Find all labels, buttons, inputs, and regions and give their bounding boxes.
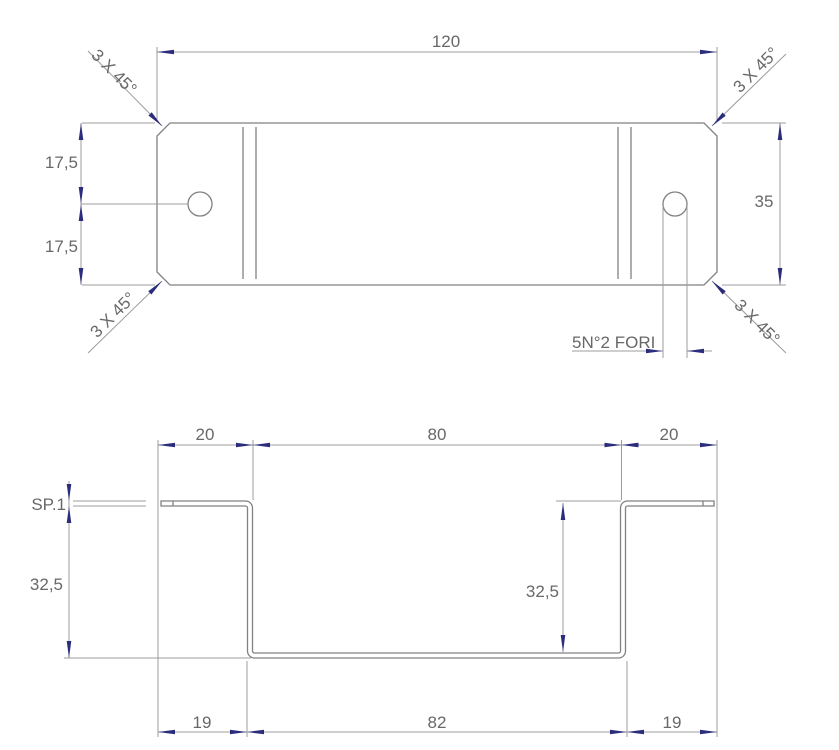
- bend-line-right: [618, 127, 631, 279]
- dim-upper-half-text: 17,5: [45, 153, 78, 172]
- height-outer-text: 32,5: [30, 575, 63, 594]
- cad-drawing: 120 35 17,5 17,5 5N°2 FORI: [0, 0, 839, 750]
- plate-outline: [157, 123, 717, 285]
- chamfer-text-bottom-right: 3 X 45°: [731, 296, 784, 349]
- profile-outline: [161, 501, 714, 658]
- bend-line-left: [243, 127, 256, 279]
- thickness-label-text: SP.1: [31, 495, 66, 514]
- hole-right: [663, 192, 687, 216]
- flange-right-text: 20: [660, 425, 679, 444]
- dim-length: 120: [157, 32, 717, 120]
- dims-top: 20 80 20: [158, 425, 717, 737]
- dim-thickness: SP.1: [31, 481, 146, 658]
- hole-left: [188, 192, 212, 216]
- chamfer-text-bottom-left: 3 X 45°: [87, 289, 140, 342]
- holes-note-text: 5N°2 FORI: [572, 333, 655, 352]
- dim-height-inner: 32,5: [526, 501, 621, 652]
- flange-left-text: 20: [196, 425, 215, 444]
- chamfer-text-top-right: 3 X 45°: [730, 44, 783, 97]
- holes-callout: 5N°2 FORI: [572, 206, 712, 358]
- drawing-sheet: 120 35 17,5 17,5 5N°2 FORI: [0, 0, 839, 750]
- dim-height-outer: 32,5: [30, 575, 251, 658]
- section-view: SP.1 32,5 32,5 20 80 20: [30, 425, 717, 737]
- bottom-right-text: 19: [663, 713, 682, 732]
- height-inner-text: 32,5: [526, 582, 559, 601]
- bottom-span-text: 82: [428, 713, 447, 732]
- top-view: 120 35 17,5 17,5 5N°2 FORI: [45, 32, 786, 358]
- span-top-text: 80: [428, 425, 447, 444]
- dim-lower-half-text: 17,5: [45, 237, 78, 256]
- dim-width-text: 35: [755, 192, 774, 211]
- dim-hole-position: 17,5 17,5: [45, 123, 188, 285]
- dim-width: 35: [722, 123, 786, 285]
- chamfer-callouts: 3 X 45° 3 X 45° 3 X 45° 3 X 45°: [87, 44, 786, 353]
- chamfer-text-top-left: 3 X 45°: [88, 46, 141, 99]
- bottom-left-text: 19: [193, 713, 212, 732]
- dims-bottom: 19 82 19: [158, 661, 717, 737]
- dim-length-text: 120: [432, 32, 460, 51]
